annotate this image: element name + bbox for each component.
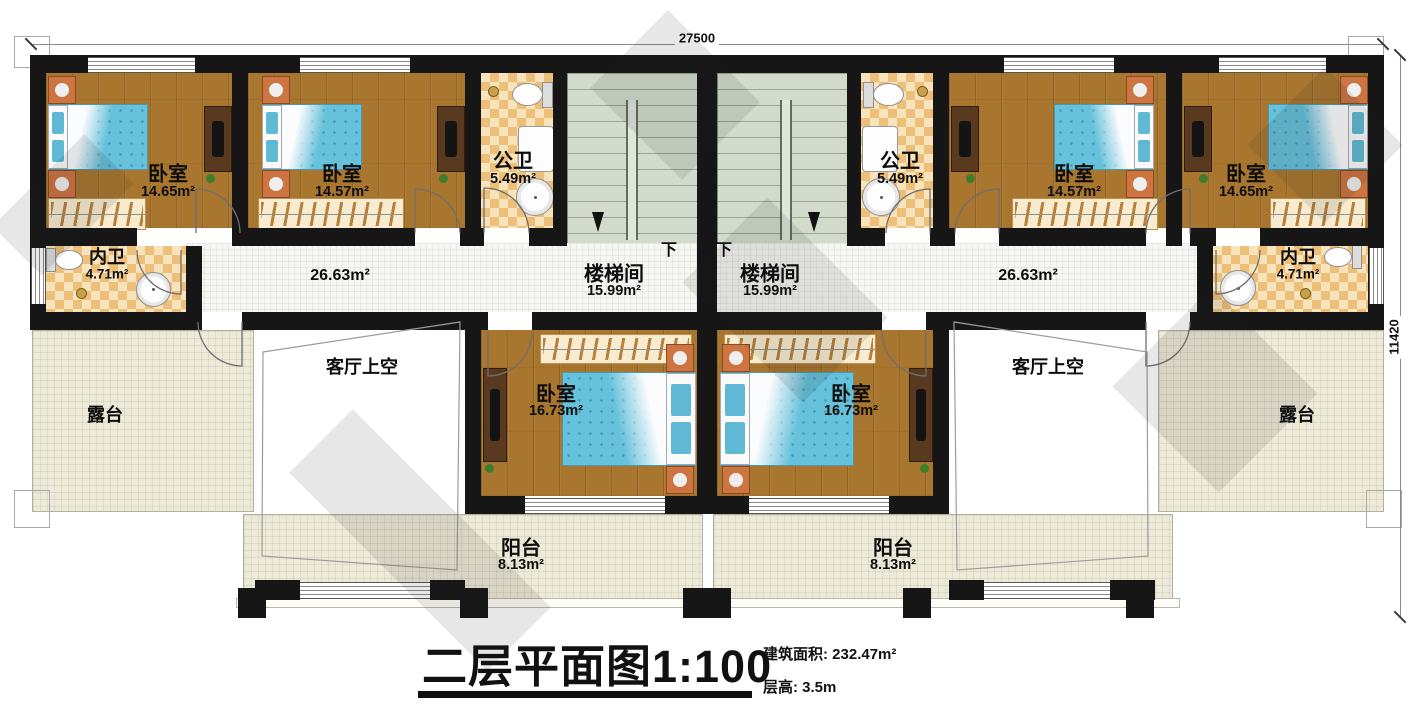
closet (258, 198, 404, 230)
pillow (265, 139, 279, 163)
window (300, 582, 430, 599)
terrace-right-floor (1158, 330, 1384, 512)
room-area-stair-right: 15.99m² (743, 283, 797, 299)
floor-plan: 卧室 14.65m² 卧室 14.57m² 公卫 5.49m² 楼梯间 15.9… (0, 0, 1414, 709)
column (683, 588, 731, 618)
bed-headboard (1134, 105, 1154, 169)
wall (240, 228, 415, 246)
bed-headboard (720, 373, 750, 465)
wall (46, 312, 198, 330)
wall (889, 496, 933, 514)
bed (48, 104, 148, 170)
plant (1199, 174, 1208, 183)
room-label-terrace-left: 露台 (87, 401, 123, 427)
toilet-icon (55, 250, 83, 270)
closet (48, 198, 146, 230)
terrace-left-floor (32, 330, 254, 512)
nightstand (262, 170, 290, 198)
desk (204, 106, 232, 172)
wall (1166, 73, 1182, 246)
room-area-bedroom-a: 14.65m² (141, 184, 195, 200)
bed-headboard (262, 105, 282, 169)
nightstand (666, 344, 694, 372)
room-label-bedroom-b: 卧室 (322, 158, 362, 187)
wall (697, 330, 717, 514)
room-area-bedroom-c: 14.57m² (1047, 184, 1101, 200)
room-area-bedroom-f: 16.73m² (824, 403, 878, 419)
room-area-corridor-left: 26.63m² (310, 267, 370, 285)
wall (232, 73, 248, 246)
nightstand (1340, 76, 1368, 104)
room-label-void-right: 客厅上空 (1012, 353, 1084, 379)
closet (1270, 198, 1366, 230)
stair-rail (780, 100, 792, 240)
plant (966, 174, 975, 183)
room-area-corridor-right: 26.63m² (998, 267, 1058, 285)
faucet (917, 86, 928, 97)
wall (465, 330, 481, 514)
faucet (1300, 288, 1311, 299)
stair-down-label-left: 下 (661, 236, 677, 260)
wall (460, 228, 484, 246)
column (238, 588, 266, 618)
bed-headboard (666, 373, 696, 465)
wall (847, 73, 861, 246)
stair-down-arrow (808, 212, 820, 238)
pillow (670, 383, 691, 417)
nightstand (48, 76, 76, 104)
room-area-bath-public-left: 5.49m² (490, 171, 536, 187)
nightstand (666, 466, 694, 494)
toilet-icon (512, 83, 543, 106)
window (1369, 248, 1384, 304)
pillow (51, 139, 65, 163)
wall (933, 73, 949, 246)
window (1004, 57, 1114, 73)
room-area-bedroom-b: 14.57m² (315, 184, 369, 200)
stair-down-arrow (592, 212, 604, 238)
window (749, 498, 889, 514)
room-label-bedroom-a: 卧室 (148, 158, 188, 187)
room-area-bedroom-e: 16.73m² (529, 403, 583, 419)
room-area-bedroom-d: 14.65m² (1219, 184, 1273, 200)
wall (242, 312, 488, 330)
plan-scale: 1:100 (652, 641, 772, 692)
toilet-icon (873, 83, 904, 106)
window (1219, 57, 1326, 73)
faucet (488, 86, 499, 97)
plant (485, 464, 494, 473)
sink-icon (1220, 270, 1256, 306)
plant (439, 174, 448, 183)
building-area-note: 建筑面积: 232.47m² (763, 643, 896, 664)
room-label-bath-ensuite-right: 内卫 (1280, 243, 1316, 269)
column (460, 588, 488, 618)
nightstand (48, 170, 76, 198)
pillow (1351, 111, 1365, 135)
wall (481, 496, 525, 514)
bed-headboard (1348, 105, 1368, 169)
wall (926, 312, 1146, 330)
wall (949, 580, 984, 600)
plan-title-text: 二层平面图 (422, 641, 652, 692)
room-label-bath-ensuite-left: 内卫 (89, 243, 125, 269)
plant (920, 464, 929, 473)
plan-title: 二层平面图1:100 (422, 630, 772, 695)
room-label-bedroom-c: 卧室 (1054, 158, 1094, 187)
toilet-icon (1324, 247, 1352, 267)
wall (465, 73, 481, 246)
room-area-stair-left: 15.99m² (587, 283, 641, 299)
desk (951, 106, 979, 172)
nightstand (1340, 170, 1368, 198)
wall (529, 228, 567, 246)
faucet (76, 288, 87, 299)
wall (930, 228, 955, 246)
pillow (265, 111, 279, 135)
terrace-right-step (1366, 490, 1402, 528)
desk (437, 106, 465, 172)
closet (1012, 198, 1158, 230)
bed (1268, 104, 1368, 170)
desk (909, 368, 933, 462)
pillow (51, 111, 65, 135)
window (525, 498, 665, 514)
bed (562, 372, 696, 466)
room-area-bath-public-right: 5.49m² (877, 171, 923, 187)
dimension-height: 11420 (1387, 315, 1402, 358)
window (300, 57, 410, 73)
pillow (1137, 111, 1151, 135)
wall (532, 312, 882, 330)
pillow (1137, 139, 1151, 163)
bed-headboard (48, 105, 68, 169)
room-label-bath-public-left: 公卫 (493, 145, 533, 174)
terrace-left-step (14, 490, 50, 528)
wall (847, 228, 885, 246)
floor-height-note: 层高: 3.5m (763, 676, 836, 697)
stair-rail (626, 100, 638, 240)
room-area-balcony-right: 8.13m² (870, 557, 916, 573)
wall (665, 496, 749, 514)
wall (1190, 228, 1216, 246)
window (88, 57, 195, 73)
room-area-bath-ensuite-left: 4.71m² (86, 267, 129, 282)
pillow (724, 383, 745, 417)
window (31, 248, 46, 304)
column (903, 588, 931, 618)
toilet-icon (1352, 245, 1362, 269)
stair-down-label-right: 下 (716, 236, 732, 260)
nightstand (722, 344, 750, 372)
title-underline (418, 691, 752, 698)
desk (1184, 106, 1212, 172)
wall (697, 55, 717, 330)
window (984, 582, 1110, 599)
room-label-bedroom-d: 卧室 (1226, 158, 1266, 187)
nightstand (722, 466, 750, 494)
desk (483, 368, 507, 462)
nightstand (262, 76, 290, 104)
plant (206, 174, 215, 183)
room-area-bath-ensuite-right: 4.71m² (1277, 267, 1320, 282)
wall (1190, 312, 1368, 330)
room-area-balcony-left: 8.13m² (498, 557, 544, 573)
room-label-bath-public-right: 公卫 (880, 145, 920, 174)
dimension-width: 27500 (675, 31, 719, 46)
pillow (724, 421, 745, 455)
wall (999, 228, 1146, 246)
pillow (1351, 139, 1365, 163)
nightstand (1126, 76, 1154, 104)
room-label-terrace-right: 露台 (1279, 401, 1315, 427)
column (1126, 588, 1154, 618)
sink-icon (136, 272, 171, 307)
wall (553, 73, 567, 246)
pillow (670, 421, 691, 455)
toilet-icon (542, 82, 553, 108)
room-label-void-left: 客厅上空 (326, 353, 398, 379)
nightstand (1126, 170, 1154, 198)
wall (933, 330, 949, 514)
